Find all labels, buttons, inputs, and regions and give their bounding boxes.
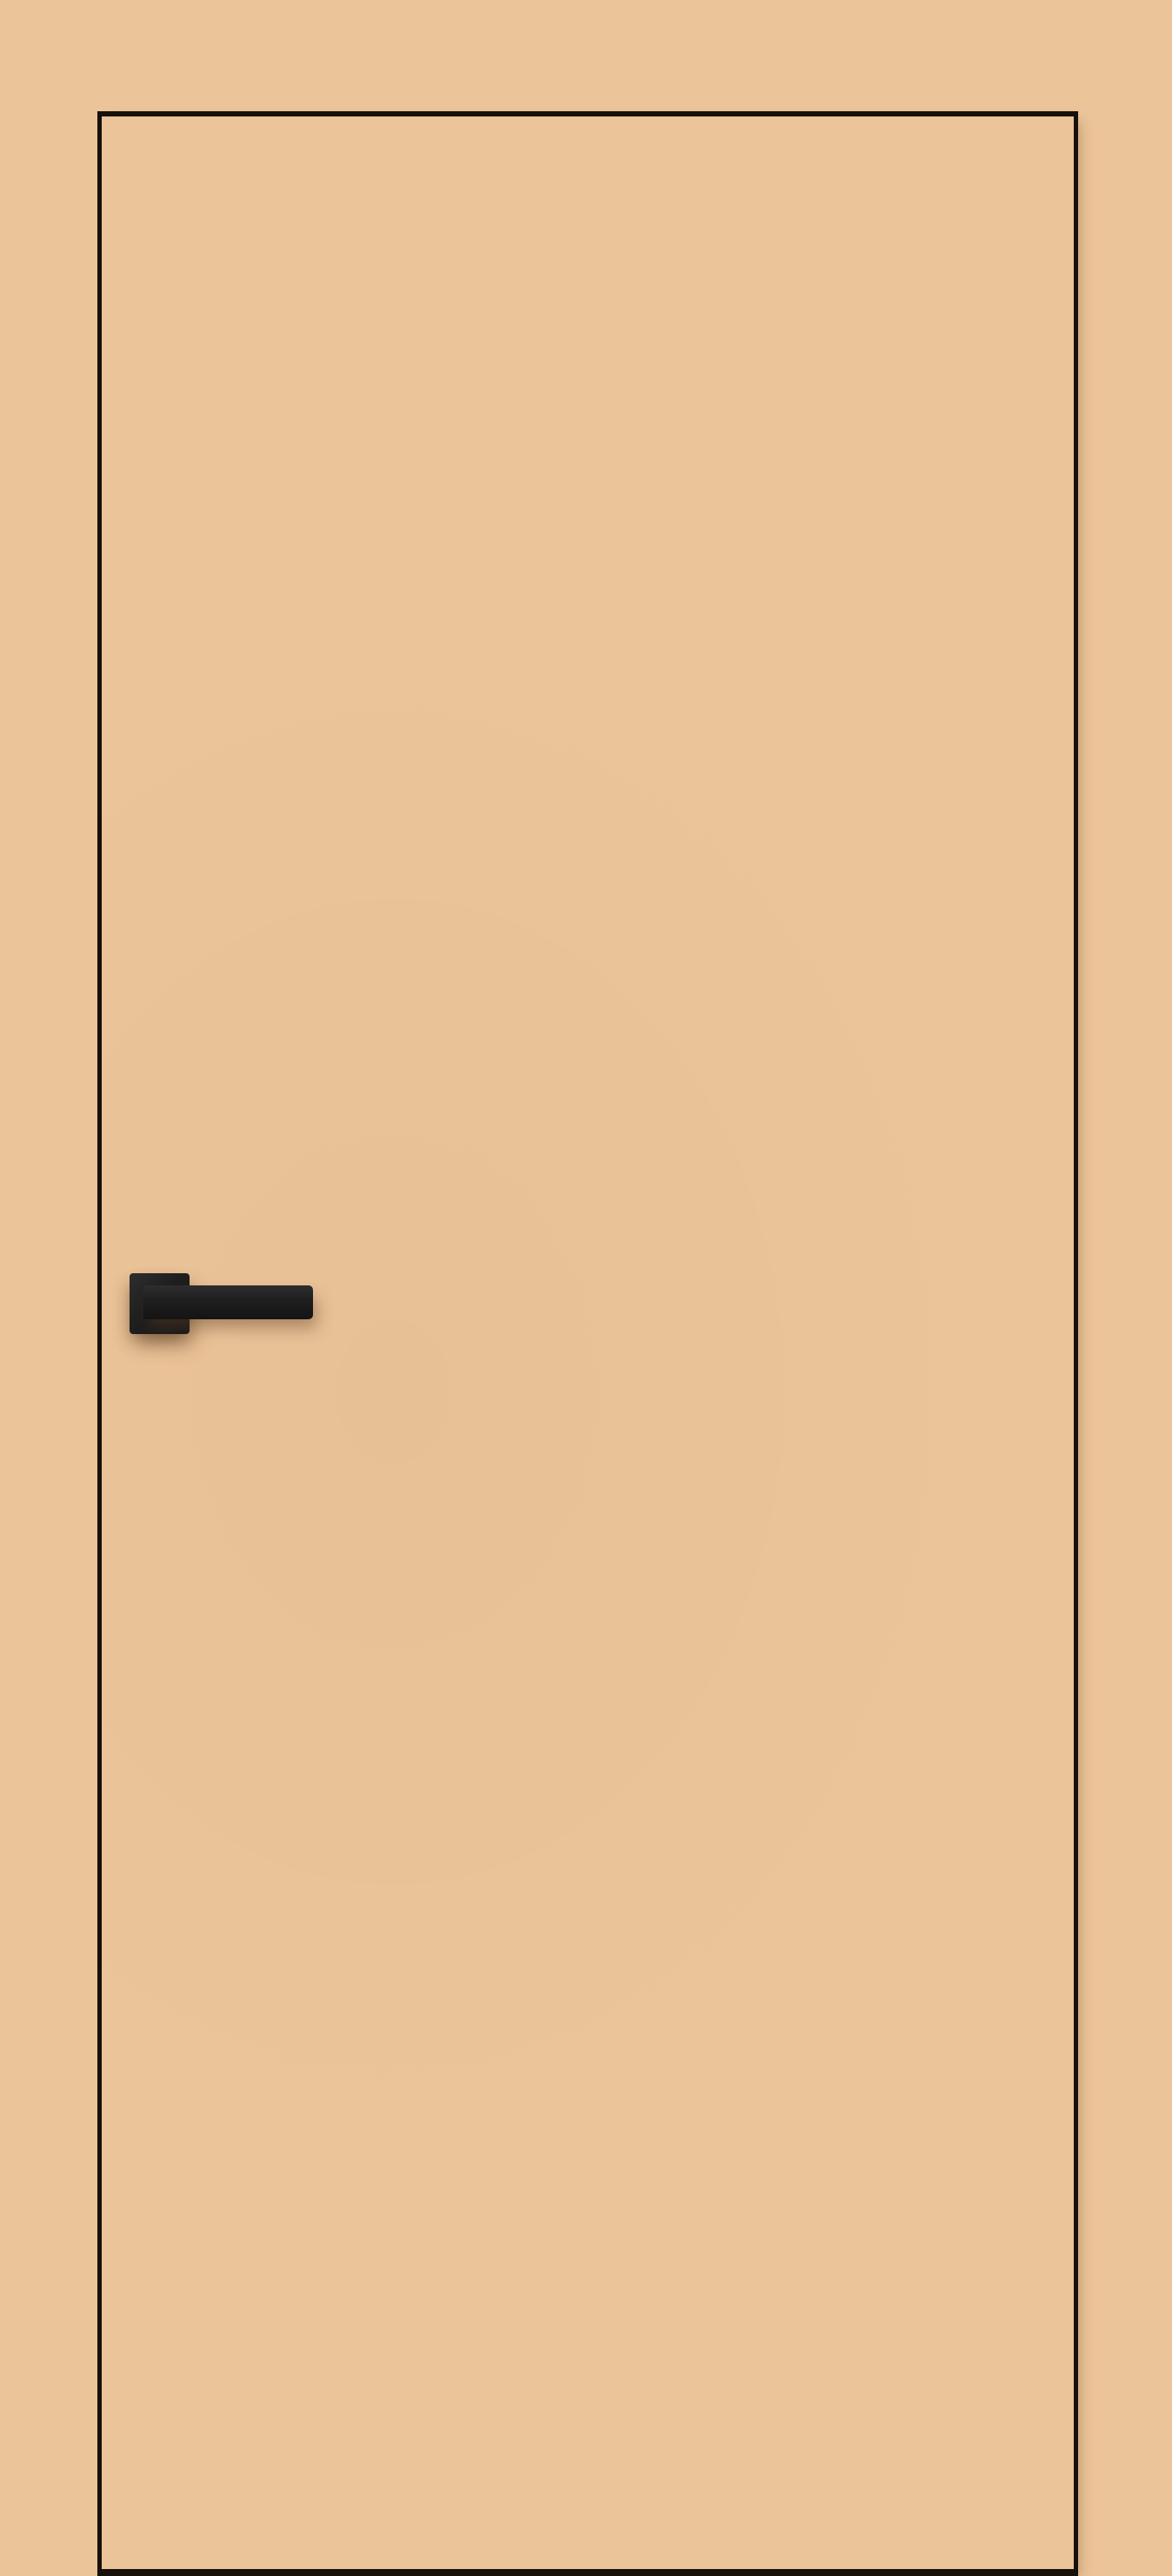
door-panel	[102, 116, 1074, 2569]
door	[97, 111, 1078, 2576]
handle-lever-icon	[143, 1285, 313, 1319]
